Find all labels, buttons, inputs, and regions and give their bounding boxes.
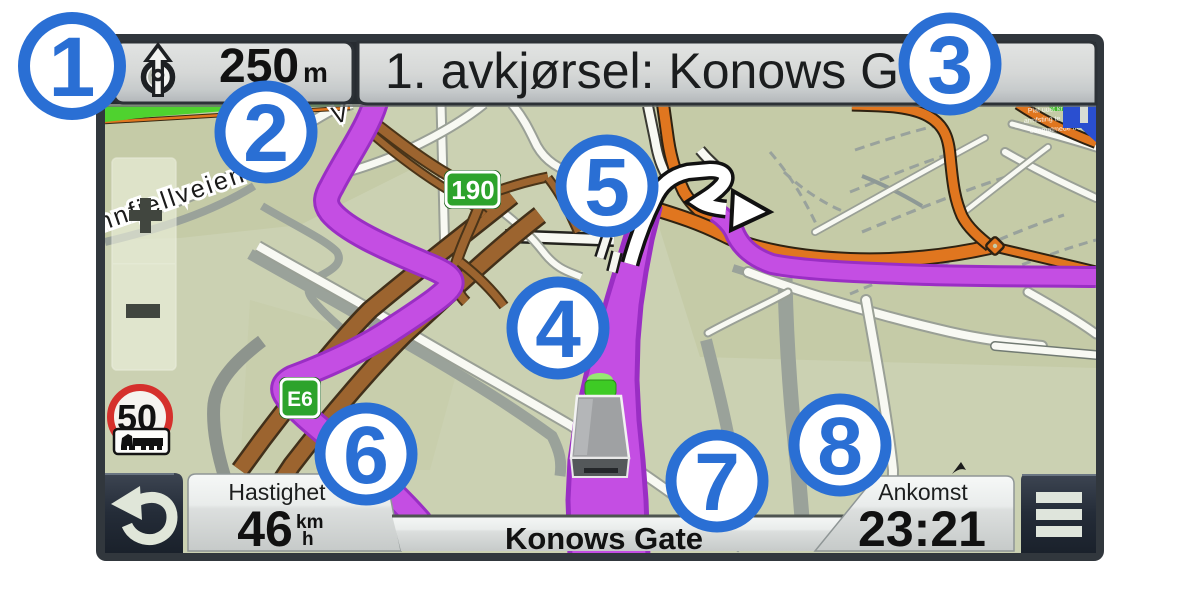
svg-text:4: 4	[535, 284, 581, 375]
svg-text:1. avkjørsel: Konows G: 1. avkjørsel: Konows G	[385, 43, 899, 99]
svg-text:6: 6	[343, 410, 389, 501]
svg-text:5: 5	[584, 142, 630, 233]
svg-text:E6: E6	[287, 388, 313, 411]
svg-text:8: 8	[817, 401, 863, 492]
svg-text:h: h	[302, 529, 314, 550]
svg-text:7: 7	[694, 437, 740, 528]
svg-text:190: 190	[451, 175, 494, 205]
svg-text:46: 46	[237, 501, 293, 557]
svg-text:Konows Gate: Konows Gate	[505, 521, 703, 556]
svg-text:2: 2	[243, 88, 289, 179]
svg-text:m: m	[303, 57, 328, 88]
svg-text:1: 1	[49, 20, 96, 114]
svg-text:3: 3	[927, 20, 973, 111]
svg-text:23:21: 23:21	[858, 501, 986, 557]
